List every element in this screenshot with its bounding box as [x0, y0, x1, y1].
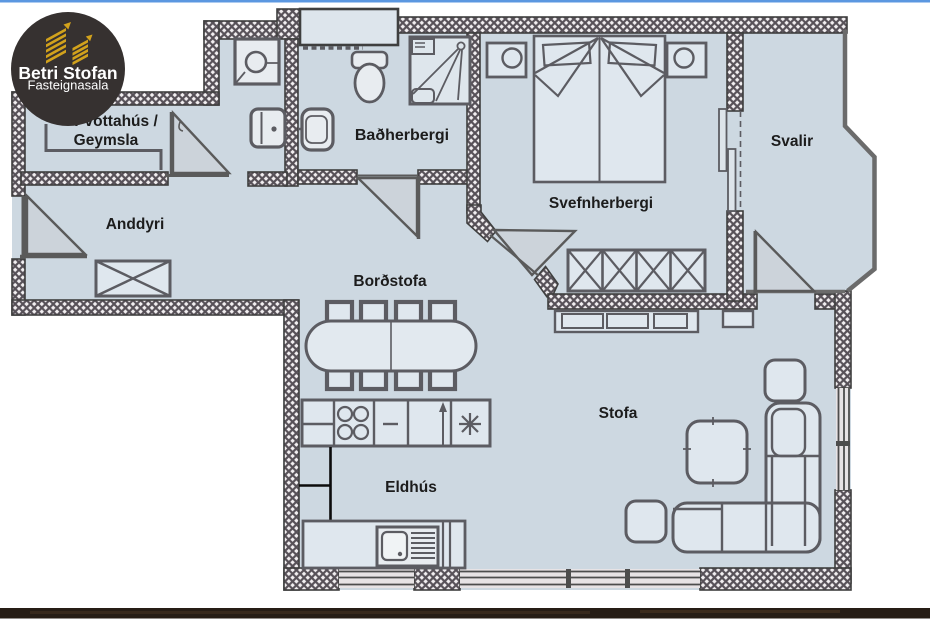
- svg-text:Baðherbergi: Baðherbergi: [355, 127, 449, 144]
- svg-text:Stofa: Stofa: [599, 405, 638, 422]
- svg-text:Geymsla: Geymsla: [74, 132, 139, 149]
- svg-text:Anddyri: Anddyri: [106, 216, 165, 233]
- svg-text:Borðstofa: Borðstofa: [353, 273, 427, 290]
- svg-text:Fasteignasala: Fasteignasala: [28, 78, 110, 93]
- svg-text:Svalir: Svalir: [771, 133, 813, 150]
- svg-text:Svefnherbergi: Svefnherbergi: [549, 195, 653, 212]
- svg-text:Eldhús: Eldhús: [385, 479, 437, 496]
